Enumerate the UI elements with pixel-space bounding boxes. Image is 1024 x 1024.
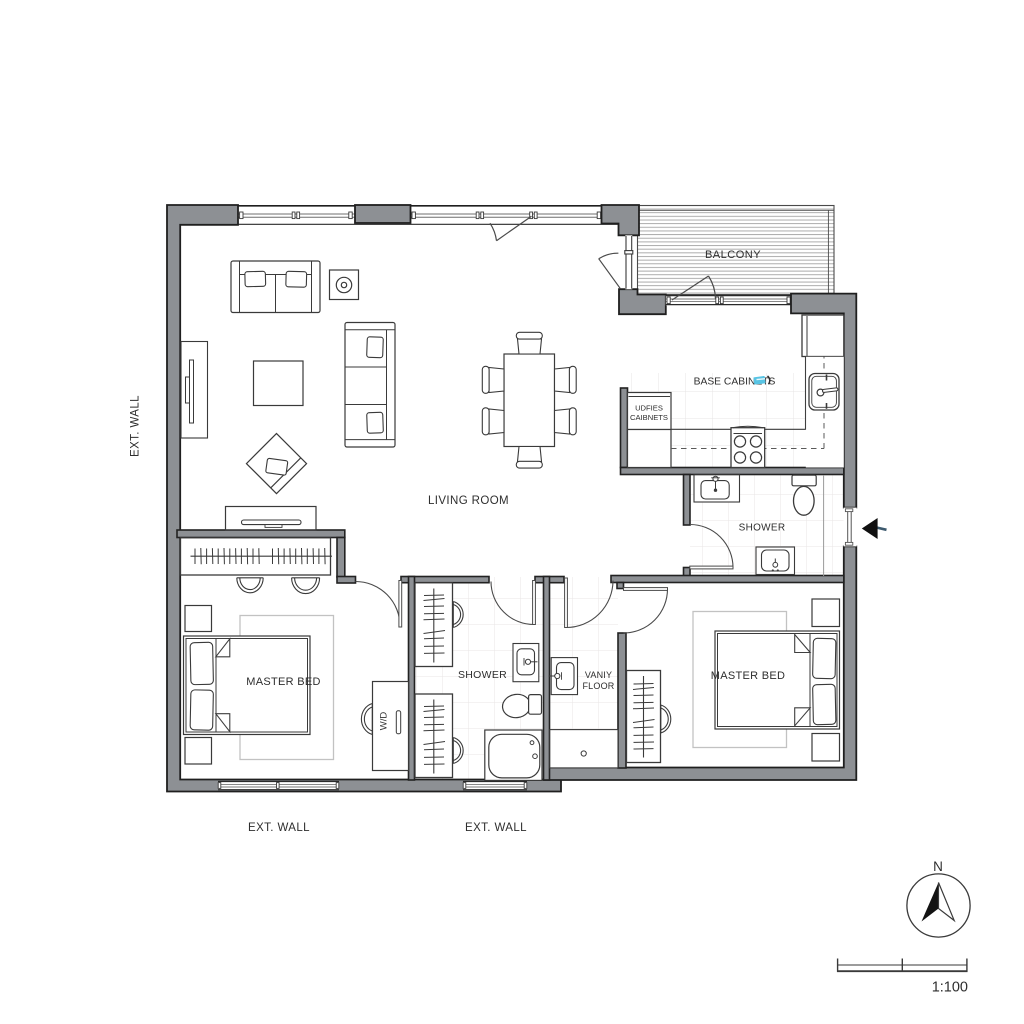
svg-text:1:100: 1:100 <box>932 980 968 996</box>
svg-text:CAIBNETS: CAIBNETS <box>630 413 668 422</box>
svg-text:EXT. WALL: EXT. WALL <box>465 822 527 834</box>
svg-text:BALCONY: BALCONY <box>705 249 761 261</box>
svg-text:VANIY: VANIY <box>585 670 612 680</box>
svg-text:FLOOR: FLOOR <box>582 681 614 691</box>
svg-text:MASTER BED: MASTER BED <box>246 676 321 688</box>
svg-text:UDFIES: UDFIES <box>635 404 663 413</box>
svg-text:W/D: W/D <box>379 712 390 731</box>
svg-text:EXT. WALL: EXT. WALL <box>248 822 310 834</box>
svg-text:SHOWER: SHOWER <box>458 669 507 681</box>
svg-text:EXT. WALL: EXT. WALL <box>130 395 142 457</box>
svg-text:SHOWER: SHOWER <box>739 523 786 534</box>
svg-text:MASTER BED: MASTER BED <box>711 670 786 682</box>
svg-text:LIVING ROOM: LIVING ROOM <box>428 495 509 507</box>
svg-text:N: N <box>933 859 943 874</box>
